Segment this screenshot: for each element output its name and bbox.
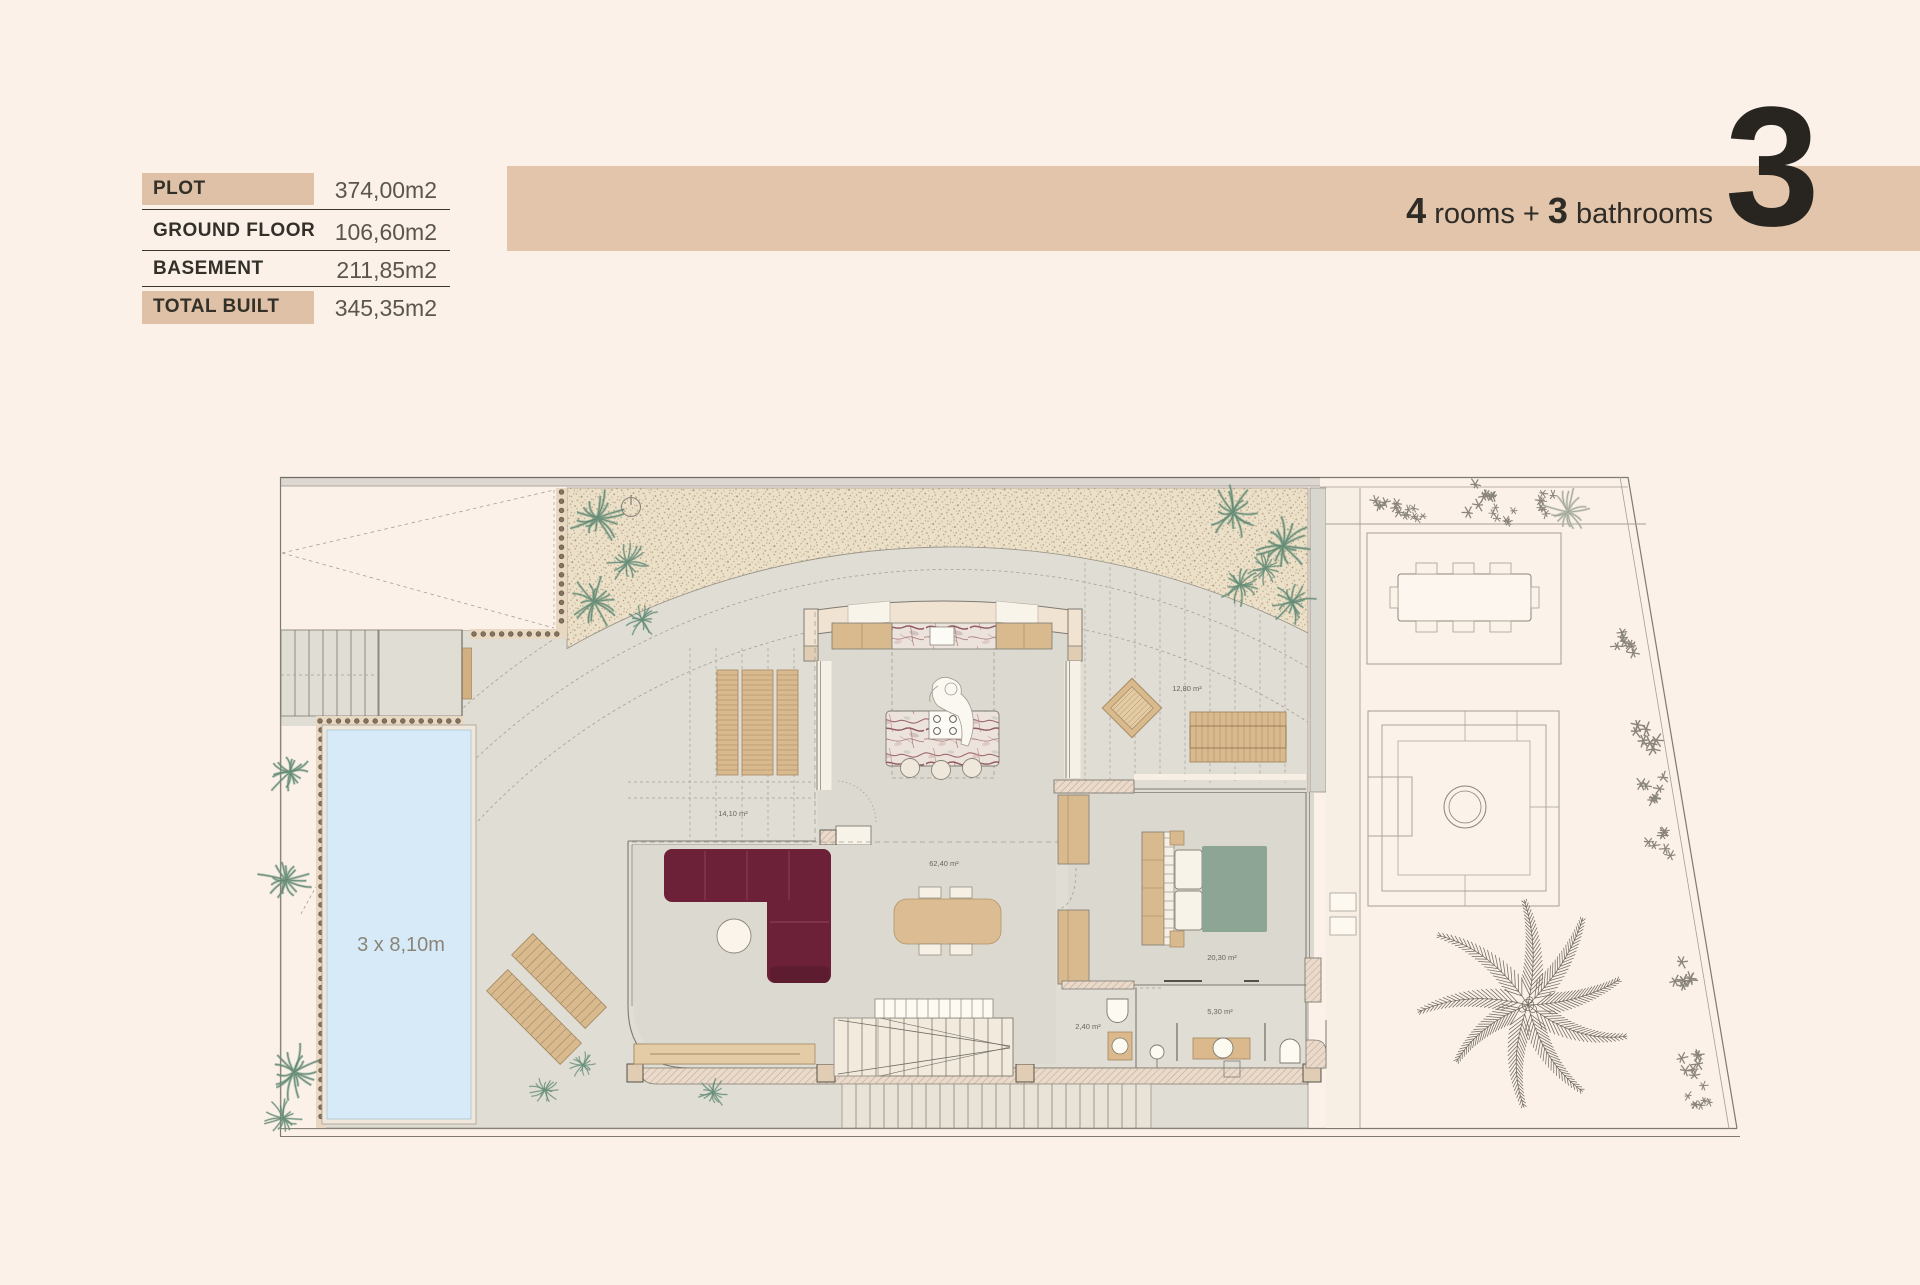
svg-text:20,30 m²: 20,30 m² — [1207, 953, 1237, 962]
svg-text:62,40 m²: 62,40 m² — [929, 859, 959, 868]
svg-text:5,30 m²: 5,30 m² — [1207, 1007, 1233, 1016]
svg-text:3 x 8,10m: 3 x 8,10m — [357, 934, 445, 956]
svg-text:12,80 m²: 12,80 m² — [1172, 684, 1202, 693]
svg-text:2,40 m²: 2,40 m² — [1075, 1022, 1101, 1031]
svg-text:14,10 m²: 14,10 m² — [718, 809, 748, 818]
